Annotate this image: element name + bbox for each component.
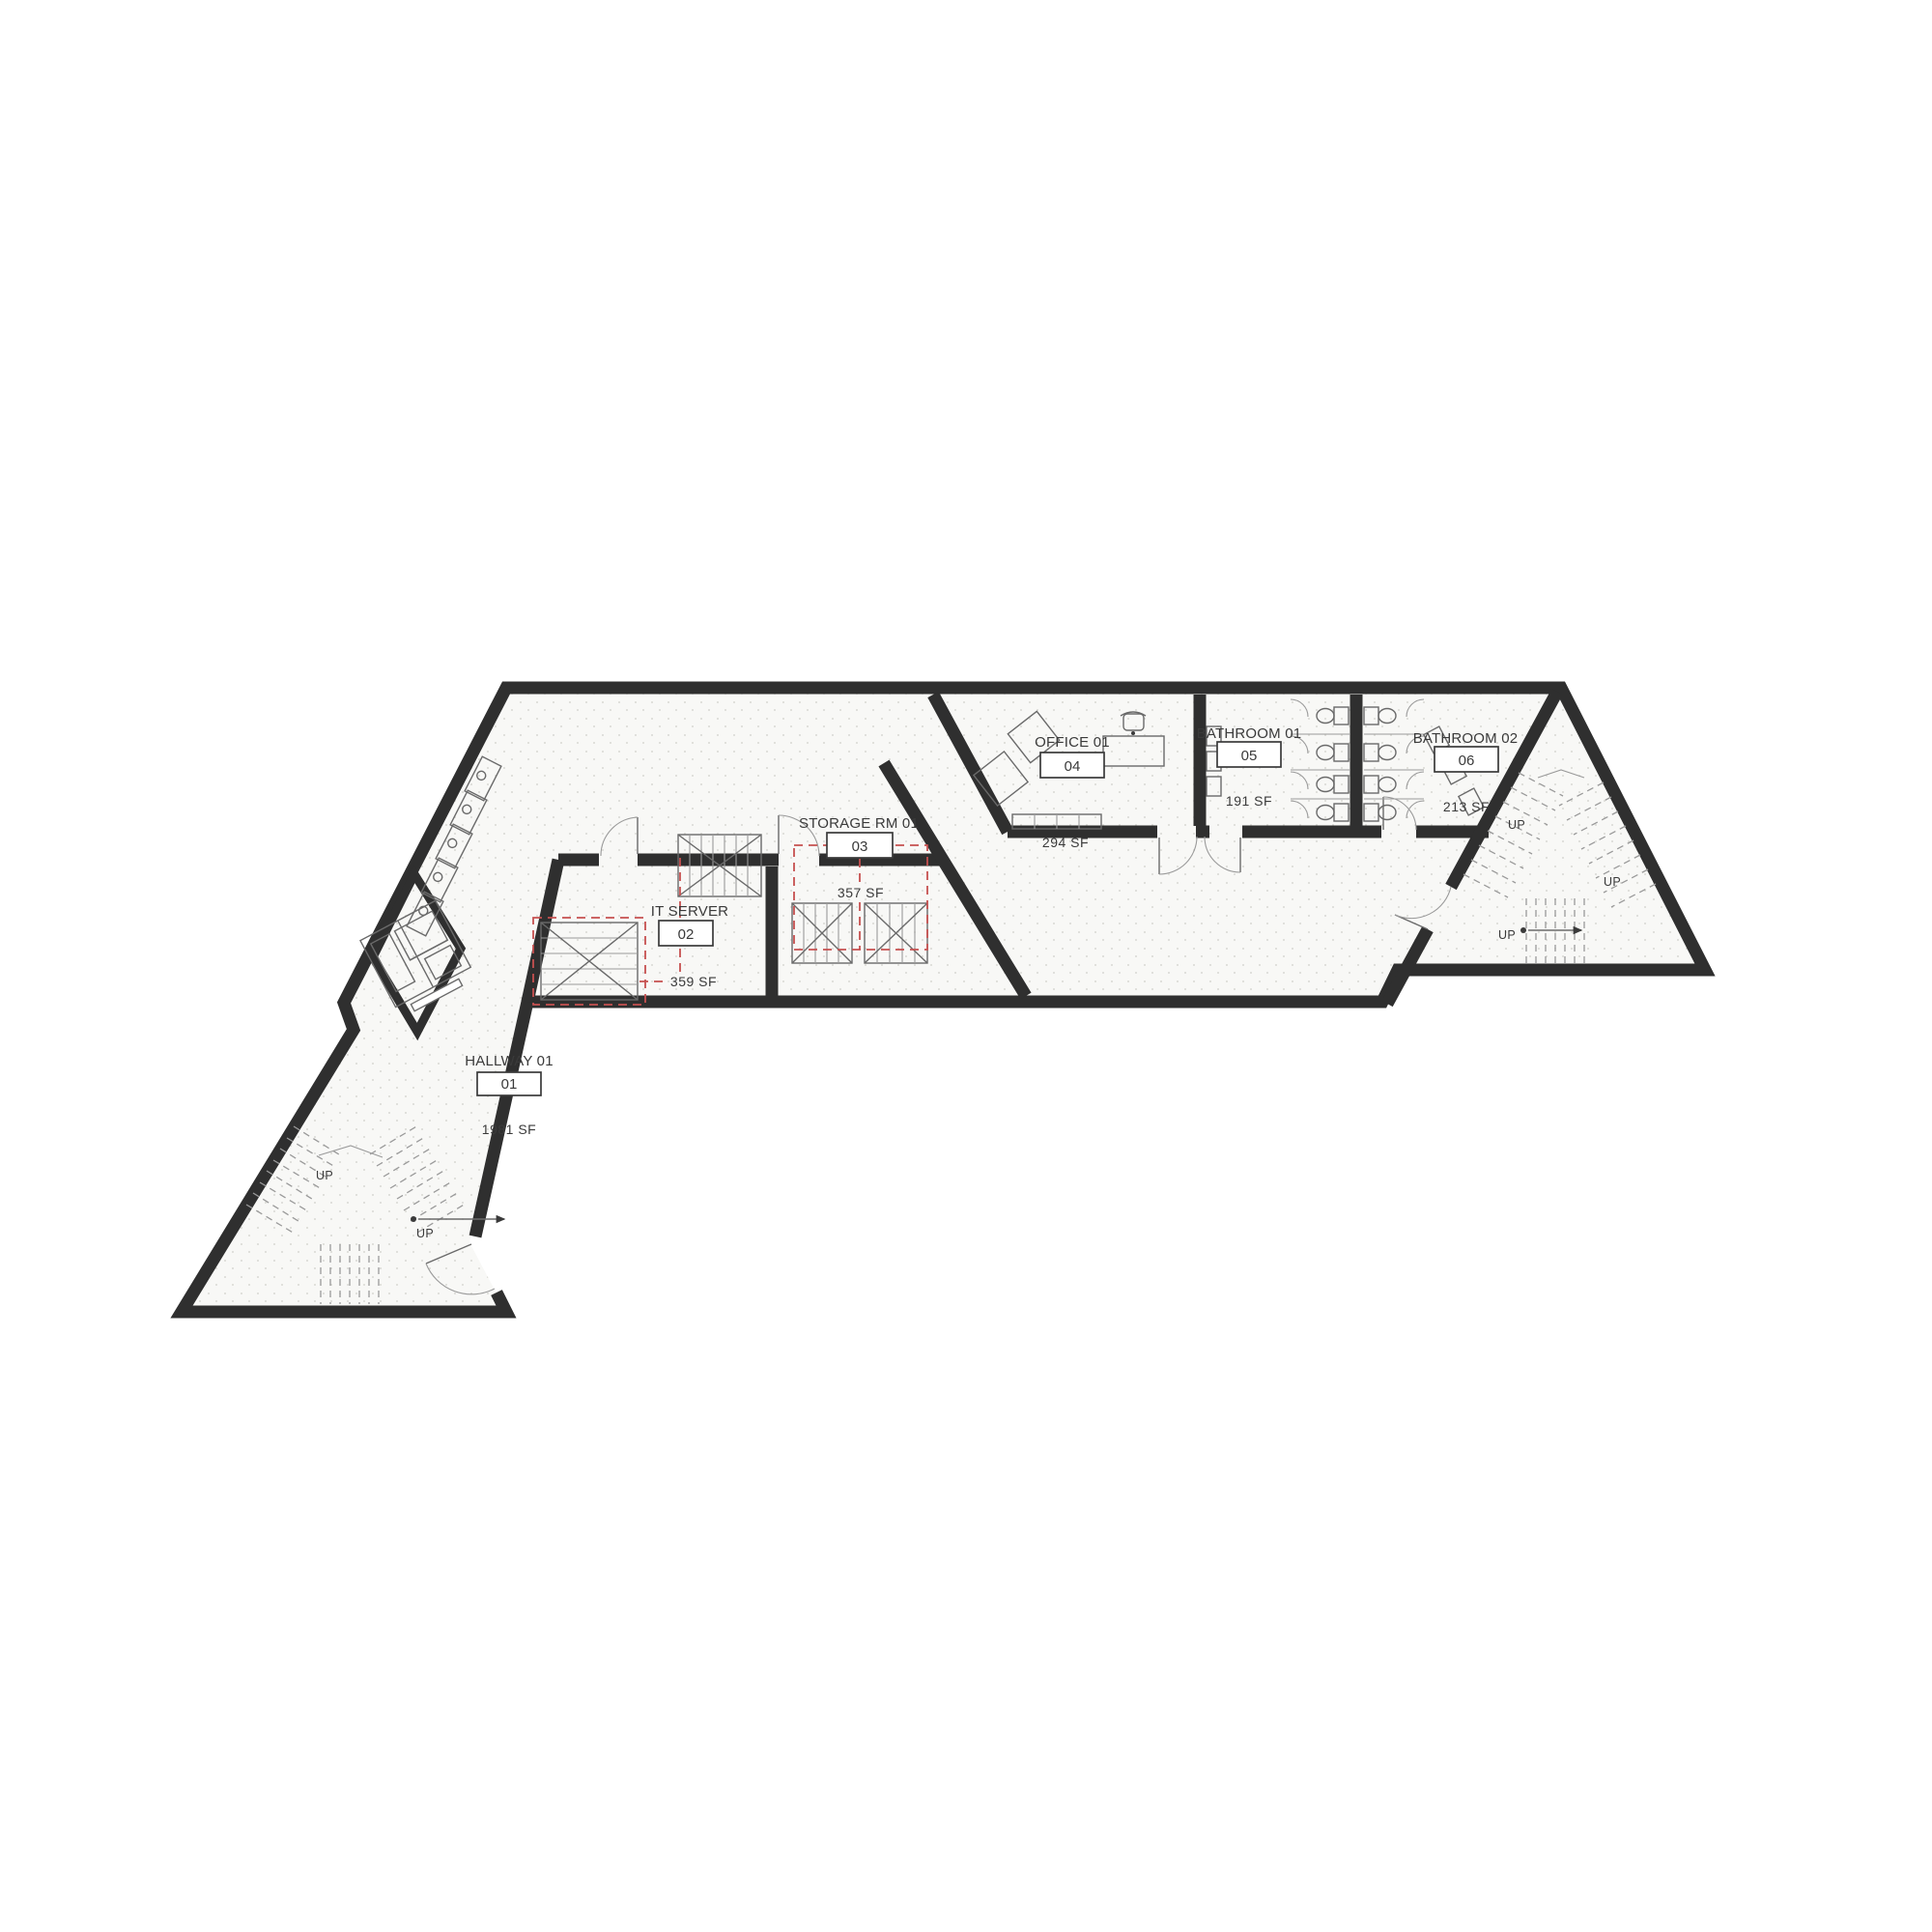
room-number: 02 <box>678 926 695 943</box>
room-area: 294 SF <box>1042 835 1089 850</box>
room-name: BATHROOM 01 <box>1197 725 1302 742</box>
room-number: 05 <box>1241 748 1258 764</box>
stair-start-dot <box>1520 927 1526 933</box>
room-number: 01 <box>501 1076 518 1093</box>
floor-plan-drawing: HALLWAY 01 01 1981 SF IT SERVER 02 359 S… <box>0 0 1932 1932</box>
floor-plan-page: HALLWAY 01 01 1981 SF IT SERVER 02 359 S… <box>0 0 1932 1932</box>
room-name: STORAGE RM 01 <box>799 815 919 832</box>
room-name: BATHROOM 02 <box>1413 730 1519 747</box>
up-label: UP <box>316 1169 333 1182</box>
room-number: 04 <box>1065 758 1081 775</box>
room-area: 357 SF <box>838 885 884 900</box>
up-label: UP <box>1604 875 1621 889</box>
room-area: 359 SF <box>670 974 717 989</box>
up-label: UP <box>1508 818 1525 832</box>
room-number: 03 <box>852 838 868 855</box>
room-area: 191 SF <box>1226 793 1272 809</box>
stair-start-dot <box>411 1216 416 1222</box>
room-name: IT SERVER <box>651 903 728 920</box>
room-area: 1981 SF <box>482 1122 536 1137</box>
room-name: HALLWAY 01 <box>465 1053 554 1069</box>
room-area: 213 SF <box>1443 799 1490 814</box>
room-name: OFFICE 01 <box>1035 734 1110 751</box>
up-label: UP <box>416 1227 434 1240</box>
up-label: UP <box>1498 928 1516 942</box>
room-number: 06 <box>1459 753 1475 769</box>
